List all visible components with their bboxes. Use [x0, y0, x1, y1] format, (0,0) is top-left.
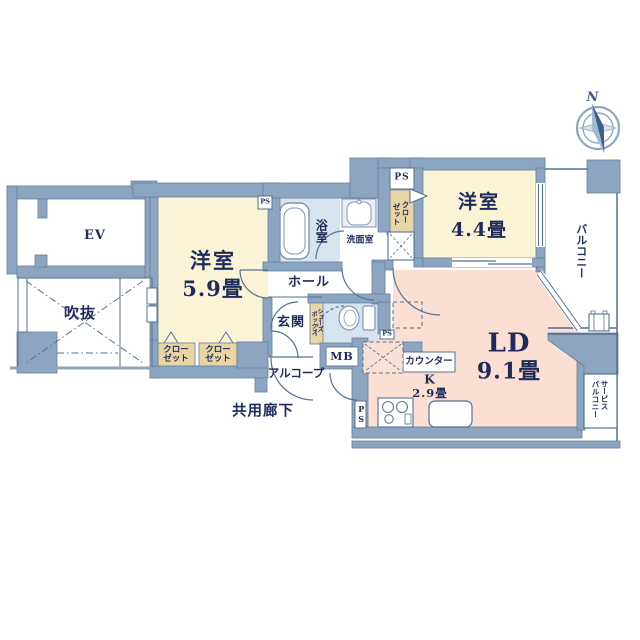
- outdoor-unit-icon: [589, 311, 609, 331]
- label-closet-left: クロー ゼット: [163, 346, 189, 364]
- label-ld-name: LD: [488, 330, 531, 357]
- label-kitchen-size: 2.9畳: [412, 387, 448, 399]
- label-ps-kitchen: PS: [357, 404, 365, 424]
- label-western-5-9-size: 5.9畳: [182, 278, 244, 300]
- label-western-4-4-size: 4.4畳: [451, 221, 507, 241]
- label-ld-size: 9.1畳: [477, 360, 541, 383]
- label-bath: 浴室: [315, 219, 328, 243]
- label-compass-north: N: [587, 91, 600, 105]
- label-western-4-4-name: 洋室: [458, 193, 500, 213]
- label-closet-right-line2: ゼット: [205, 355, 231, 364]
- kitchen-sink-icon: [429, 401, 472, 427]
- label-closet-right: クロー ゼット: [205, 346, 231, 364]
- label-hall: ホール: [288, 276, 330, 290]
- label-entrance: 玄関: [277, 316, 305, 330]
- label-meter-box: MB: [330, 351, 353, 363]
- label-shoe-box-line2: ボックス: [310, 311, 316, 335]
- western-4-4-window: [536, 183, 545, 247]
- door-hall-entrance-lower: [271, 331, 298, 358]
- label-void: 吹抜: [64, 306, 96, 322]
- western-4-4-sliding-door: [452, 258, 532, 267]
- washer-space: [388, 232, 414, 260]
- label-service-balcony-2: バルコニー: [591, 380, 599, 418]
- label-balcony: バルコニー: [575, 224, 587, 279]
- label-ps-small-2: PS: [382, 331, 392, 338]
- label-closet-left-line2: ゼット: [163, 355, 189, 364]
- label-kitchen-name: K: [424, 374, 435, 387]
- label-closet-upper-line2: ゼット: [392, 203, 400, 226]
- label-ps-top: PS: [394, 173, 409, 182]
- refrigerator-space: [363, 342, 403, 373]
- label-counter: カウンター: [405, 357, 453, 367]
- label-washroom: 洗面室: [346, 236, 373, 245]
- compass-icon: [577, 102, 619, 154]
- label-shared-corridor: 共用廊下: [232, 403, 294, 418]
- label-ev: EV: [84, 229, 106, 243]
- stove-icon: [378, 398, 413, 427]
- floor-plan: EV 吹抜 洋室 5.9畳 洋室 4.4畳 LD 9.1畳 K 2.9畳 浴室 …: [0, 0, 640, 640]
- label-alcove: アルコープ: [268, 367, 324, 379]
- room-western-4-4: [423, 170, 536, 258]
- label-western-5-9-name: 洋室: [190, 250, 236, 272]
- label-closet-upper-line1: クロー: [401, 201, 409, 224]
- label-ps-small-1: PS: [260, 199, 270, 206]
- label-service-balcony-1: サービス: [600, 380, 608, 410]
- washbasin-icon: [342, 199, 376, 227]
- bathtub-icon: [280, 203, 309, 259]
